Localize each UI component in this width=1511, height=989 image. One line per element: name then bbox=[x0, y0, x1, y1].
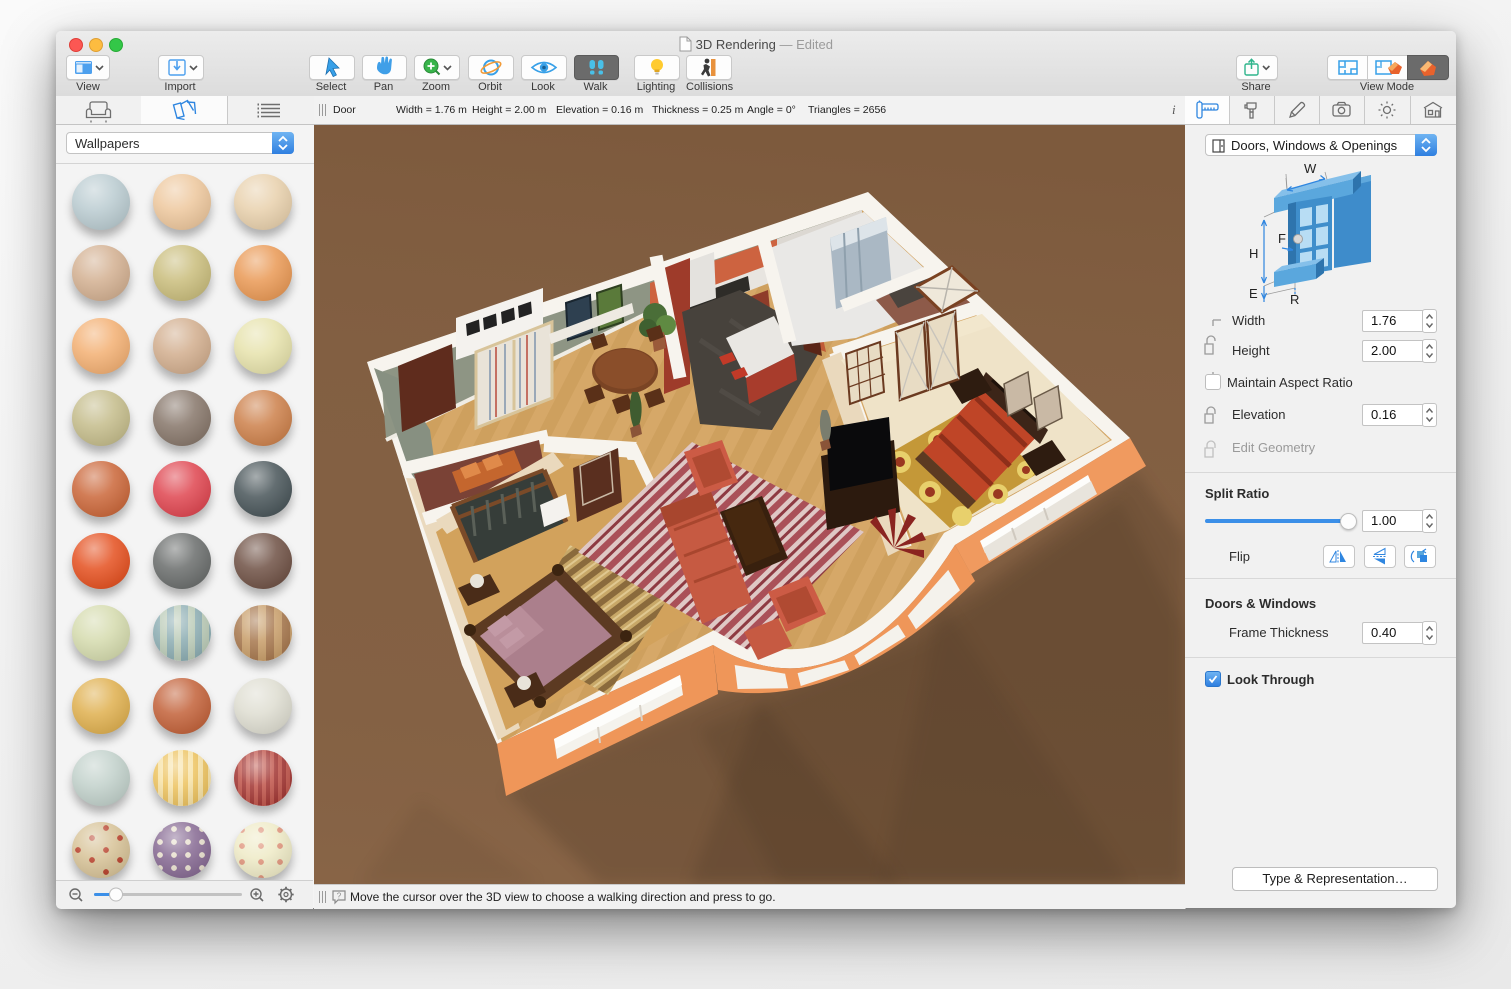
svg-text:F: F bbox=[1278, 231, 1286, 246]
svg-text:?: ? bbox=[337, 892, 342, 901]
svg-text:E: E bbox=[1249, 286, 1258, 301]
svg-text:R: R bbox=[1290, 292, 1299, 307]
svg-text:H: H bbox=[1249, 246, 1258, 261]
svg-text:W: W bbox=[1304, 162, 1317, 176]
